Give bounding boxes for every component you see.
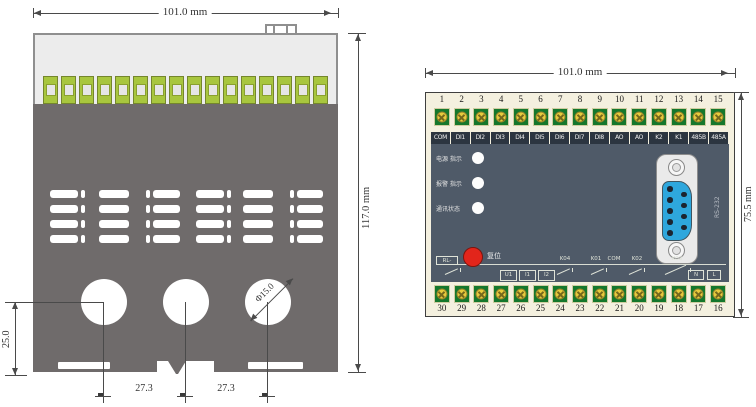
terminal-number: 22 [591,303,609,313]
vent-slot [297,190,323,198]
power-terminal-box: L [707,270,721,280]
terminal-block [97,76,112,104]
db9-pin [667,230,673,236]
vent-slot [153,205,180,213]
terminal-screw-block [493,285,509,303]
terminal-number: 16 [709,303,727,313]
screw-icon [673,112,684,123]
relay-contact-icon [556,266,574,276]
screw-icon [456,289,467,300]
vent-slot [196,205,224,213]
dim-ref-line [5,302,103,303]
vent-slot [243,235,273,243]
screw-icon [535,112,546,123]
dim-ext-line [267,302,268,403]
terminal-block [187,76,202,104]
screw-icon [515,112,526,123]
terminal-number: 25 [532,303,550,313]
screw-icon [713,289,724,300]
vent-slot [227,220,231,228]
terminal-label: DI5 [530,132,550,144]
vent-slot [297,235,323,243]
terminal-number: 6 [532,94,550,104]
terminal-screw-block [592,108,608,126]
terminal-label: 485A [709,132,729,144]
terminal-screw-block [710,108,726,126]
terminal-screw-block [434,285,450,303]
vent-slot [290,190,294,198]
screw-icon [476,112,487,123]
terminal-screw-block [631,108,647,126]
terminal-label: 485B [689,132,709,144]
terminal-number: 2 [453,94,471,104]
terminal-block [259,76,274,104]
terminal-screw-block [671,285,687,303]
input-terminal-box: U1 [500,270,517,281]
dim-arrow [324,10,331,16]
mounting-foot-slot [248,362,303,369]
terminal-screw-block [454,108,470,126]
db9-pin [667,208,673,214]
terminal-number: 20 [630,303,648,313]
vent-slot [50,190,78,198]
screw-icon [575,112,586,123]
terminal-block [205,76,220,104]
dim-arrow [355,34,361,41]
terminal-screw-block [651,285,667,303]
led-label: 电源 指示 [436,154,462,163]
terminal-screw-block [592,285,608,303]
relay-label: K04 [560,256,571,262]
vent-slot [50,235,78,243]
terminal-screw-block [611,108,627,126]
vent-slot [227,190,231,198]
terminal-block [223,76,238,104]
terminal-number: 7 [551,94,569,104]
screw-icon [496,289,507,300]
db9-pin [667,197,673,203]
input-terminal-box: I1 [519,270,536,281]
terminal-screw-block [690,108,706,126]
db9-pin [681,214,687,220]
vent-slot [99,190,129,198]
terminal-screw-block [434,108,450,126]
terminal-number: 26 [512,303,530,313]
dim-tick [259,396,275,397]
terminal-label-strip: COMDI1DI2DI3DI4DI5DI6DI7DI8AOAOK2K1485B4… [431,132,729,144]
terminal-label: DI3 [491,132,511,144]
relay-label: COM [608,256,621,262]
vent-slot [153,220,180,228]
db9-screw-hole [672,246,681,255]
vent-slot [99,235,129,243]
screw-icon [555,289,566,300]
terminal-label: COM [431,132,451,144]
relay-label: K01 [591,256,602,262]
terminal-number: 9 [591,94,609,104]
terminal-screw-block [572,285,588,303]
vent-slot [196,220,224,228]
db9-pin [681,192,687,198]
engineering-drawing-canvas: 101.0 mm 25.0 27.3 27.3 Φ15.0 117.0 mm [0,0,756,407]
db9-pin [681,203,687,209]
terminal-screw-block [473,108,489,126]
terminal-screw-block [671,108,687,126]
dim-arrow [12,302,18,309]
terminal-number: 4 [492,94,510,104]
terminal-number: 10 [610,94,628,104]
vent-slot [227,205,231,213]
dim-label-width-right: 101.0 mm [554,66,607,78]
vent-slot [146,205,150,213]
screw-icon [693,112,704,123]
terminal-number: 1 [433,94,451,104]
terminal-number: 28 [472,303,490,313]
power-terminal-box: N [688,270,704,280]
terminal-number: 24 [551,303,569,313]
terminal-screw-block [552,108,568,126]
terminal-block [295,76,310,104]
terminal-block [241,76,256,104]
db9-pin [667,186,673,192]
led-label: 报警 指示 [436,179,462,188]
screw-icon [594,112,605,123]
terminal-screw-block [533,285,549,303]
dim-label-hole-offset: 25.0 [1,316,12,362]
dim-line-hole-offset [15,302,16,375]
terminal-screw-block [631,285,647,303]
screw-icon [436,289,447,300]
dim-tick [95,396,111,397]
terminal-screw-block [533,108,549,126]
screw-icon [456,112,467,123]
relay-contact-icon [444,266,462,276]
terminal-label: AO [610,132,630,144]
screw-icon [555,112,566,123]
terminal-label: DI8 [590,132,610,144]
terminal-number: 11 [630,94,648,104]
terminal-number: 3 [472,94,490,104]
dim-tick [348,372,366,373]
vent-slot [81,190,85,198]
screw-icon [653,112,664,123]
reset-button-label: 复位 [487,251,501,261]
dim-label-height-left: 117.0 mm [361,168,372,248]
screw-icon [693,289,704,300]
terminal-label: DI6 [550,132,570,144]
screw-icon [713,112,724,123]
terminal-block [43,76,58,104]
schematic-left-label-box: RL- [436,256,458,265]
vent-slot [243,205,273,213]
input-terminal-box: I2 [538,270,555,281]
serial-port-label: RS-232 [714,183,721,231]
dim-label-hole-spacing-1: 27.3 [135,383,153,394]
screw-icon [653,289,664,300]
terminal-number: 21 [610,303,628,313]
dim-label-width-left: 101.0 mm [159,6,212,18]
terminal-screw-block [493,108,509,126]
screw-icon [634,289,645,300]
terminal-number: 29 [453,303,471,313]
vent-slot [297,220,323,228]
dim-arrow [721,70,728,76]
screw-icon [575,289,586,300]
relay-contact-icon [628,266,646,276]
terminal-screw-block [710,285,726,303]
vent-slot [50,220,78,228]
relay-contact-icon [590,266,608,276]
terminal-block [277,76,292,104]
screw-icon [673,289,684,300]
terminal-block [79,76,94,104]
screw-icon [634,112,645,123]
vent-slot [243,220,273,228]
vent-slot [146,220,150,228]
dim-tick [338,8,339,18]
terminal-screw-block [513,108,529,126]
dim-ext-line [103,302,104,403]
terminal-screw-block [572,108,588,126]
relay-label: K03 [672,256,683,262]
terminal-number: 15 [709,94,727,104]
vent-slot [146,190,150,198]
terminal-block [61,76,76,104]
terminal-number: 30 [433,303,451,313]
vent-slot [146,235,150,243]
dim-tick-mark [180,393,185,396]
terminal-screw-block [454,285,470,303]
terminal-label: DI4 [510,132,530,144]
vent-slot [243,190,273,198]
vent-slot [290,220,294,228]
terminal-number: 23 [571,303,589,313]
relay-label: K02 [632,256,643,262]
dim-arrow [34,10,41,16]
dim-tick [177,396,193,397]
led-indicator [472,152,484,164]
terminal-number: 5 [512,94,530,104]
terminal-block [169,76,184,104]
vent-slot [290,205,294,213]
db9-pin [681,225,687,231]
dim-tick-mark [98,393,103,396]
vent-slot [227,235,231,243]
terminal-block [151,76,166,104]
din-rail-clip [168,361,186,374]
screw-icon [614,289,625,300]
dim-line-height-right [741,92,742,317]
vent-slot [196,235,224,243]
terminal-label: AO [630,132,650,144]
dim-tick [733,317,749,318]
reset-button [463,247,483,267]
vent-slot [153,235,180,243]
dim-arrow [426,70,433,76]
dim-arrow [738,309,744,316]
dim-arrow [12,368,18,375]
screw-icon [515,289,526,300]
terminal-number: 18 [670,303,688,313]
vent-slot [81,235,85,243]
vent-slot [297,205,323,213]
vent-slot [50,205,78,213]
terminal-screw-block [552,285,568,303]
terminal-block [313,76,328,104]
screw-icon [614,112,625,123]
vent-slot [99,220,129,228]
terminal-number: 12 [650,94,668,104]
terminal-screw-block [690,285,706,303]
terminal-block [133,76,148,104]
terminal-screw-block [473,285,489,303]
terminal-block [115,76,130,104]
db9-screw-hole [672,163,681,172]
screw-icon [476,289,487,300]
led-indicator [472,177,484,189]
terminal-number: 27 [492,303,510,313]
screw-icon [496,112,507,123]
dim-tick [5,375,27,376]
terminal-number: 14 [689,94,707,104]
dim-tick-mark [262,393,267,396]
vent-slot [196,190,224,198]
led-indicator [472,202,484,214]
dim-line-height-left [358,33,359,372]
dim-arrow [738,93,744,100]
terminal-label: DI2 [471,132,491,144]
screw-icon [535,289,546,300]
terminal-screw-block [611,285,627,303]
screw-icon [436,112,447,123]
dim-ext-line [185,302,186,403]
dim-label-height-right: 75.5 mm [743,172,754,236]
vent-slot [290,235,294,243]
dim-tick [735,68,736,78]
terminal-label: K2 [649,132,669,144]
vent-slot [81,205,85,213]
db9-pin [667,219,673,225]
terminal-number: 8 [571,94,589,104]
terminal-number: 17 [689,303,707,313]
terminal-label: K1 [669,132,689,144]
dim-label-hole-spacing-2: 27.3 [217,383,235,394]
terminal-number: 13 [670,94,688,104]
led-label: 通讯状态 [436,204,460,213]
vent-slot [99,205,129,213]
dim-arrow [355,364,361,371]
terminal-screw-block [651,108,667,126]
terminal-label: DI1 [451,132,471,144]
vent-slot [81,220,85,228]
vent-slot [153,190,180,198]
terminal-screw-block [513,285,529,303]
terminal-number: 19 [650,303,668,313]
terminal-label: DI7 [570,132,590,144]
screw-icon [594,289,605,300]
